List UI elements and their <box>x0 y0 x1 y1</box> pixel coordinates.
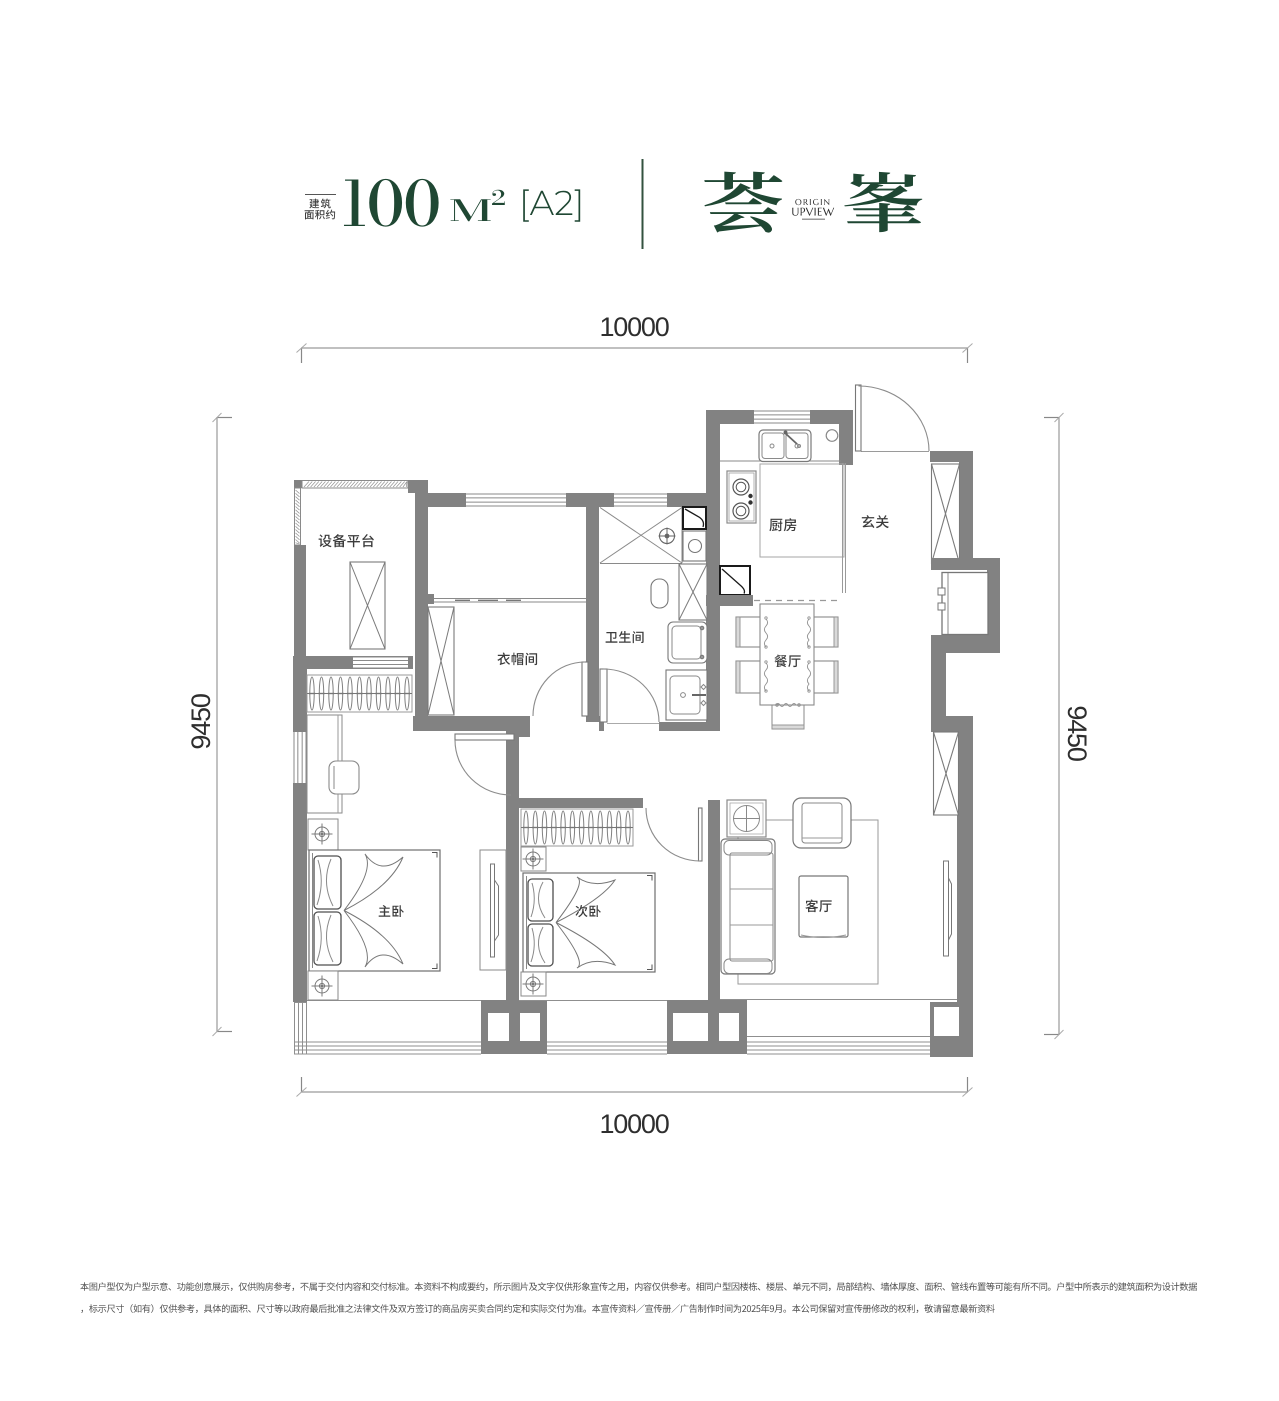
svg-text:9450: 9450 <box>186 694 216 749</box>
svg-text:9450: 9450 <box>1062 705 1092 760</box>
svg-text:10000: 10000 <box>599 312 668 342</box>
svg-text:10000: 10000 <box>599 1109 668 1139</box>
